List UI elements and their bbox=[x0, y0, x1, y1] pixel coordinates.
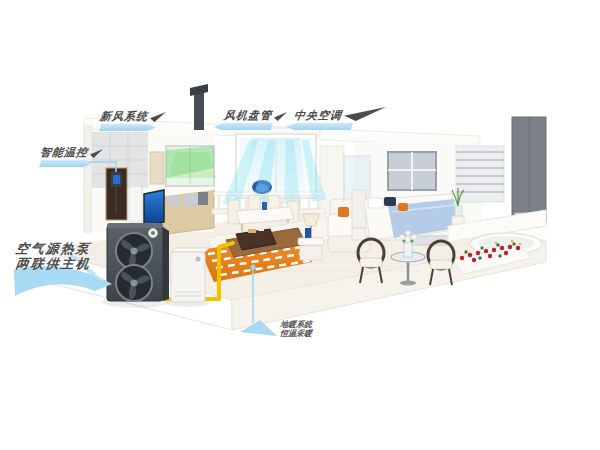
water-purifier bbox=[129, 186, 142, 222]
fan-top bbox=[116, 233, 152, 269]
nightstand bbox=[352, 228, 366, 240]
blinds-window bbox=[456, 146, 504, 202]
house-cutaway-scene bbox=[0, 0, 600, 450]
fan-bottom bbox=[116, 265, 152, 301]
outdoor-heat-pump bbox=[107, 223, 169, 301]
aquarium-tv bbox=[144, 190, 164, 226]
page: 新风系统 风机盘管 中央空调 智能温控 空气源热泵 两联供主机 地暖系统 恒温采… bbox=[0, 0, 600, 450]
fresh-air-window bbox=[166, 146, 216, 186]
hydraulic-module bbox=[171, 248, 209, 302]
